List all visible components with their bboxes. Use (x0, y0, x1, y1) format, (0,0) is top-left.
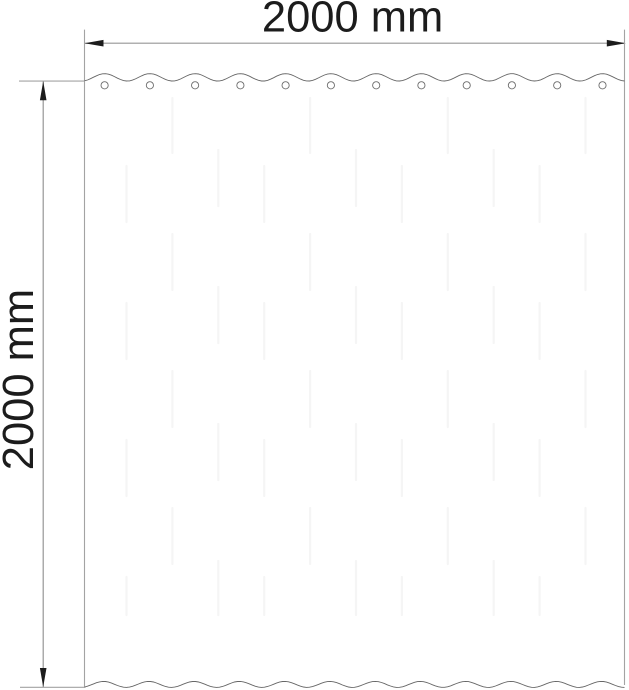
svg-text:2000 mm: 2000 mm (0, 289, 43, 470)
svg-text:2000 mm: 2000 mm (262, 0, 443, 42)
